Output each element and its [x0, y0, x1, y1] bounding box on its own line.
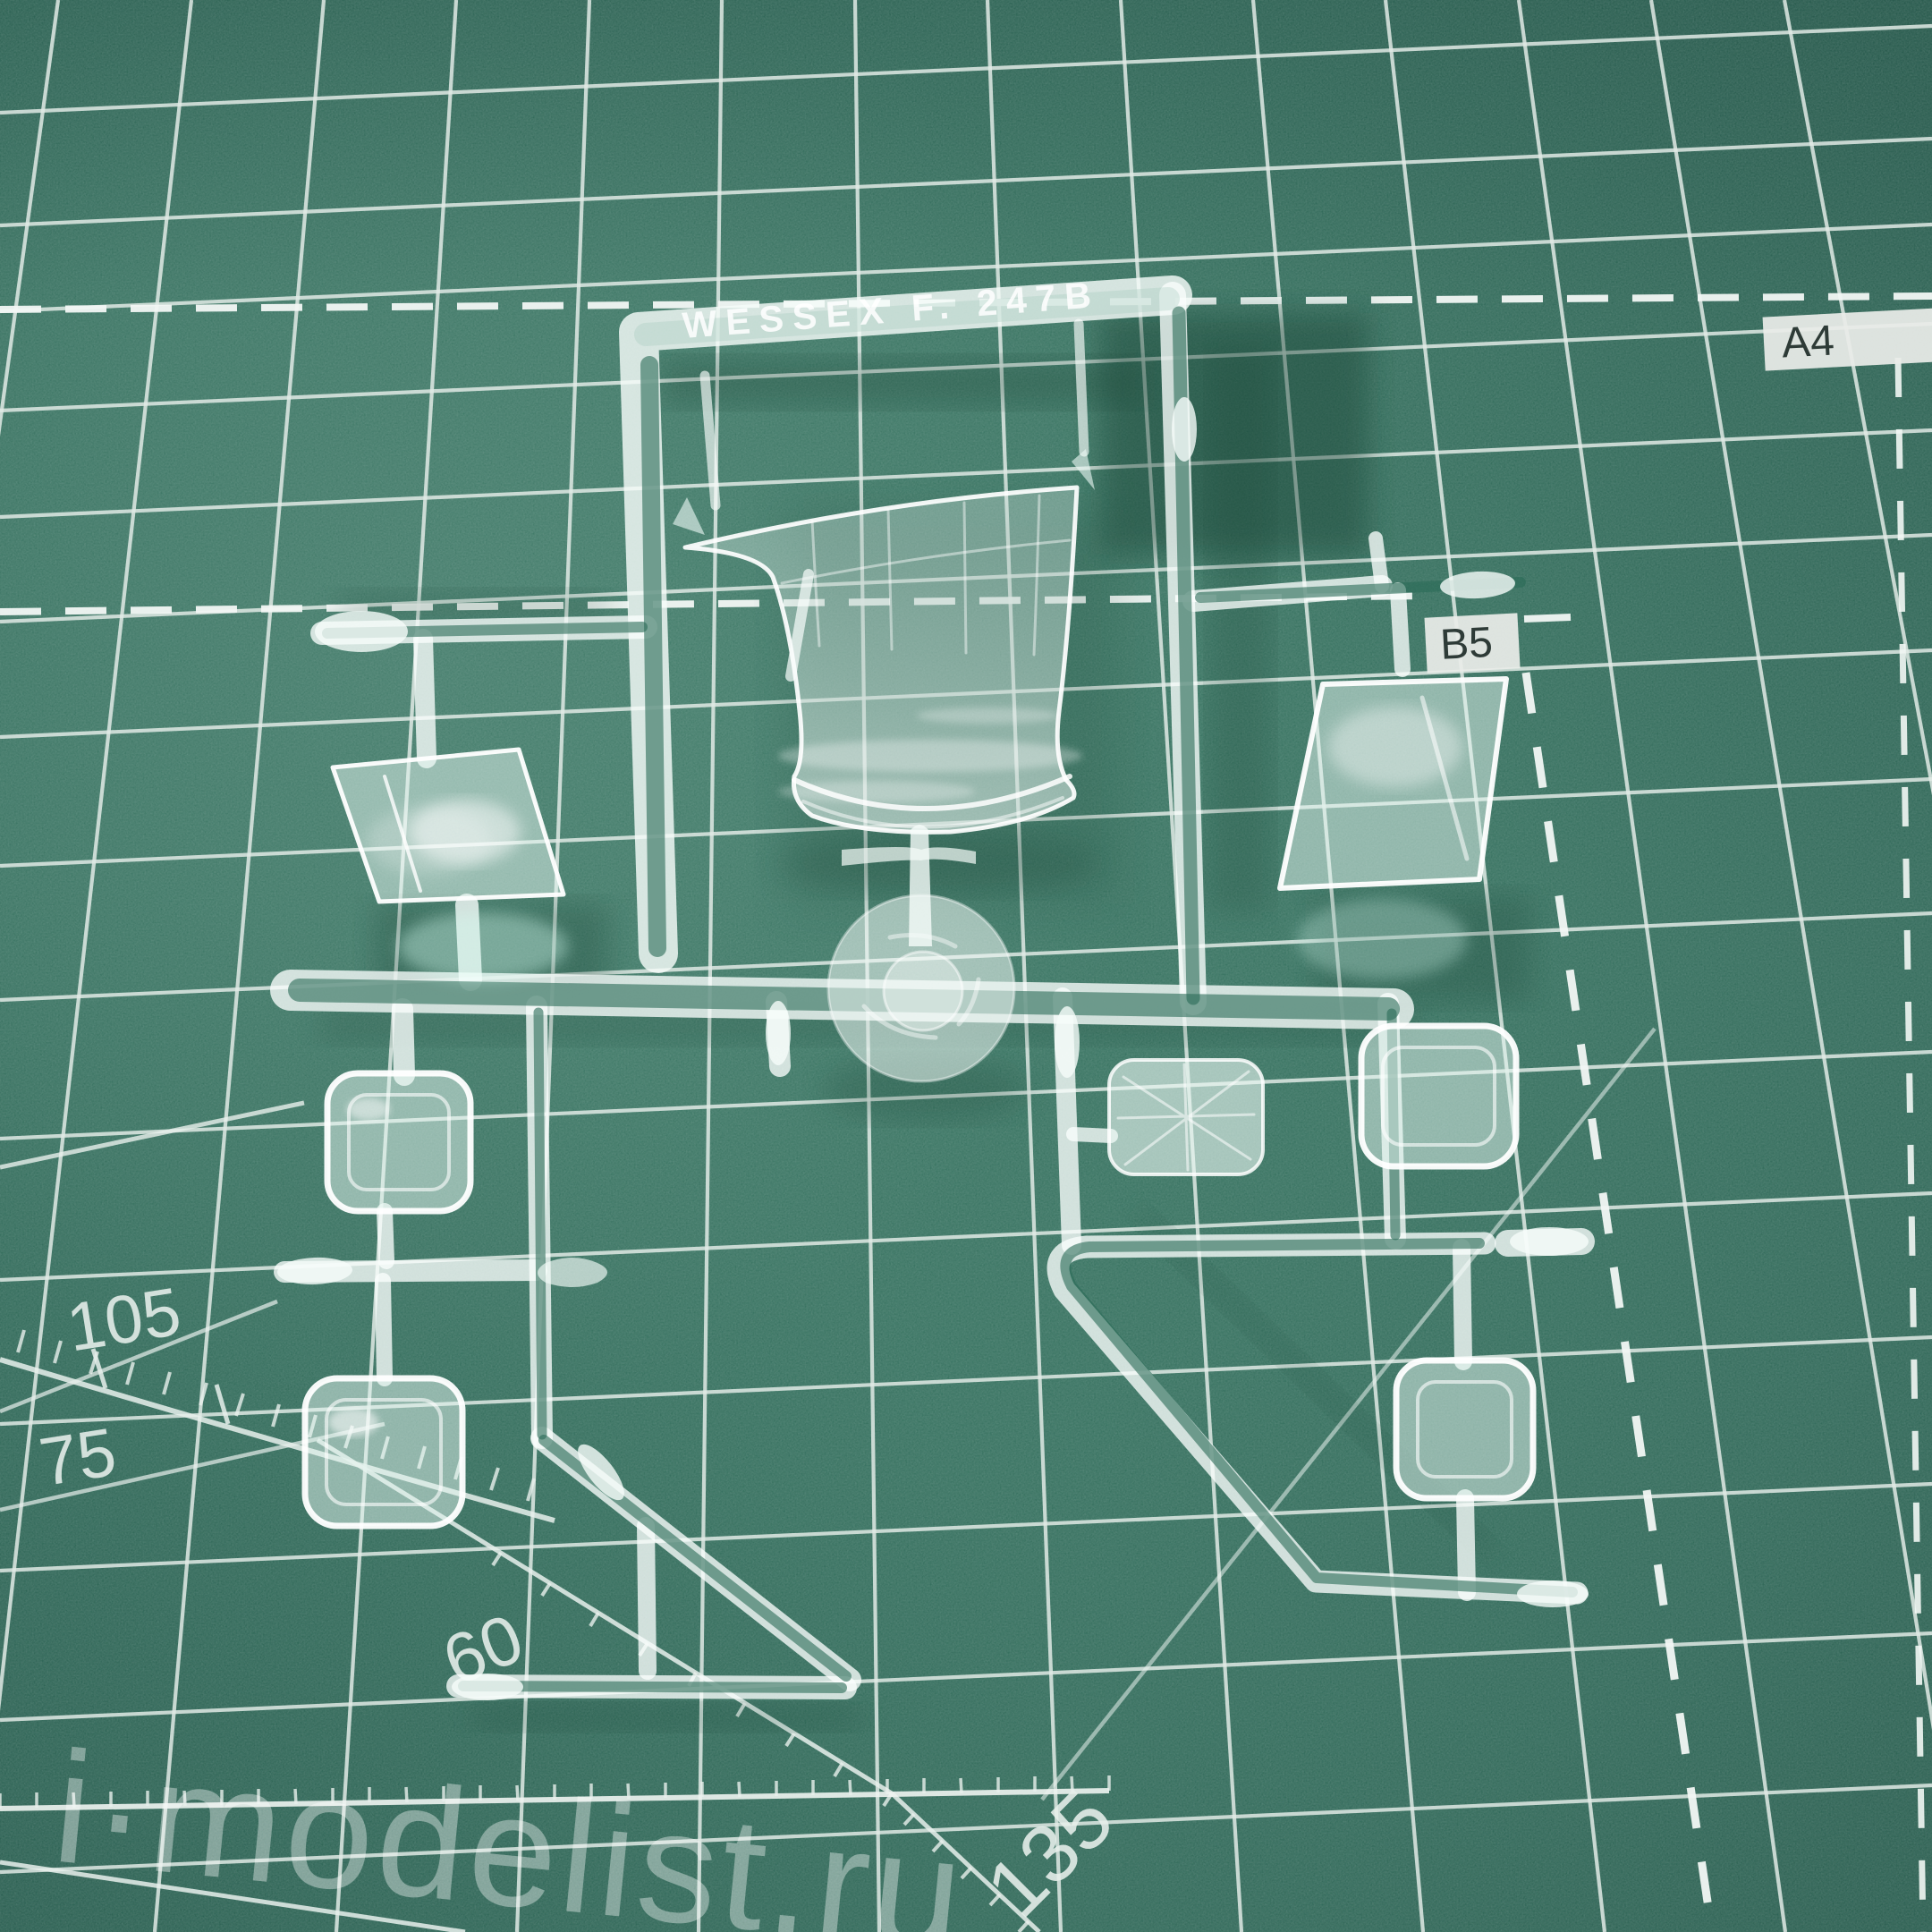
svg-text:75: 75 [35, 1414, 122, 1501]
svg-text:B5: B5 [1439, 619, 1494, 669]
svg-text:A4: A4 [1781, 318, 1835, 368]
